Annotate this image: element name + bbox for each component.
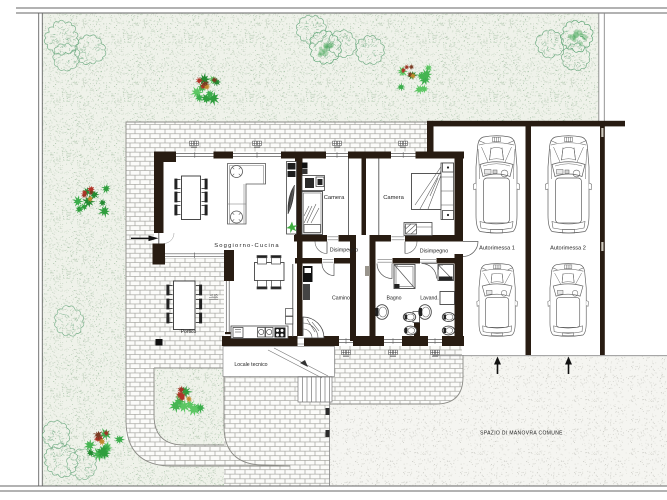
svg-text:Disimpegno: Disimpegno xyxy=(420,249,448,255)
svg-text:Camera: Camera xyxy=(383,195,404,201)
svg-text:Portico: Portico xyxy=(181,329,197,335)
svg-text:Soggiorno-Cucina: Soggiorno-Cucina xyxy=(214,243,280,249)
svg-text:Locale tecnico: Locale tecnico xyxy=(234,362,267,368)
svg-text:Disimpegno: Disimpegno xyxy=(330,248,358,254)
svg-text:+0.05: +0.05 xyxy=(209,294,217,298)
svg-text:Camino: Camino xyxy=(332,296,350,302)
svg-text:Lavand.: Lavand. xyxy=(420,296,438,302)
svg-text:Autorimessa 1: Autorimessa 1 xyxy=(479,246,515,252)
svg-text:Bagno: Bagno xyxy=(386,296,401,302)
svg-text:SPAZIO DI MANOVRA COMUNE: SPAZIO DI MANOVRA COMUNE xyxy=(480,431,563,437)
svg-text:Camera: Camera xyxy=(324,195,345,201)
svg-text:Autorimessa 2: Autorimessa 2 xyxy=(550,246,586,252)
